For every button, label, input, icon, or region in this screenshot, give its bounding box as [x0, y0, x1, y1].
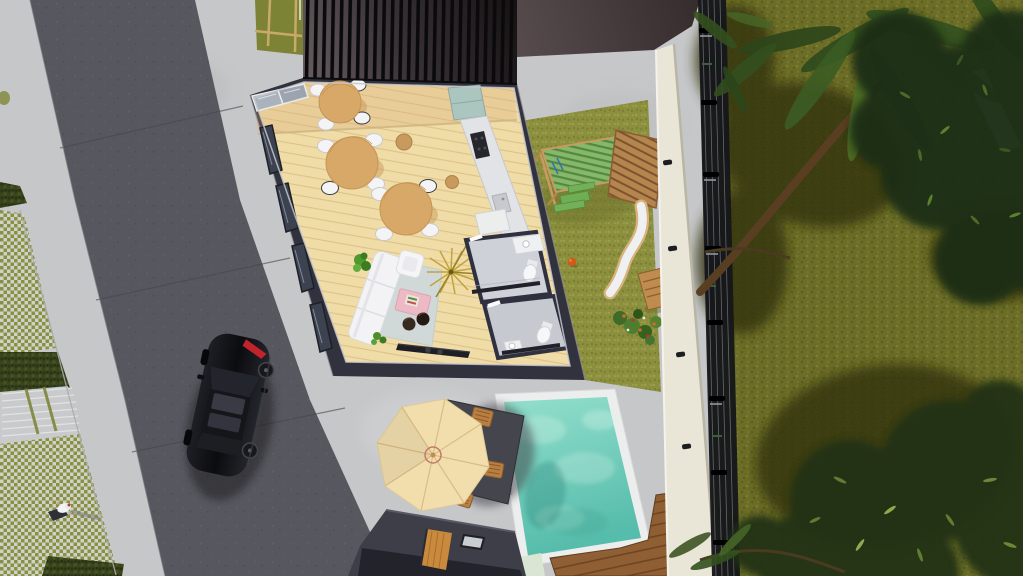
- pedestrian-arm: [56, 501, 59, 504]
- dining-table: [319, 81, 361, 123]
- stool: [446, 176, 459, 189]
- pouf: [417, 313, 430, 326]
- stool: [396, 134, 412, 150]
- pedestrian-cap: [68, 504, 71, 507]
- pouf: [403, 318, 416, 331]
- front-garden-strip: [255, 0, 303, 55]
- garage-window: [461, 535, 484, 549]
- bathroom-lower: [484, 296, 568, 358]
- pergola-slats: [303, 0, 517, 84]
- pedestrian-arm: [68, 511, 71, 514]
- bathroom-sink: [509, 343, 515, 349]
- dining-table: [326, 137, 378, 189]
- lower-cabinet: [475, 209, 510, 235]
- bathroom-sink: [523, 241, 529, 247]
- bathroom-upper: [466, 232, 550, 302]
- dining-table: [380, 183, 432, 235]
- parasol-pole: [431, 453, 436, 458]
- scene-canvas: Aerial 3D architectural render of a resi…: [0, 0, 1023, 576]
